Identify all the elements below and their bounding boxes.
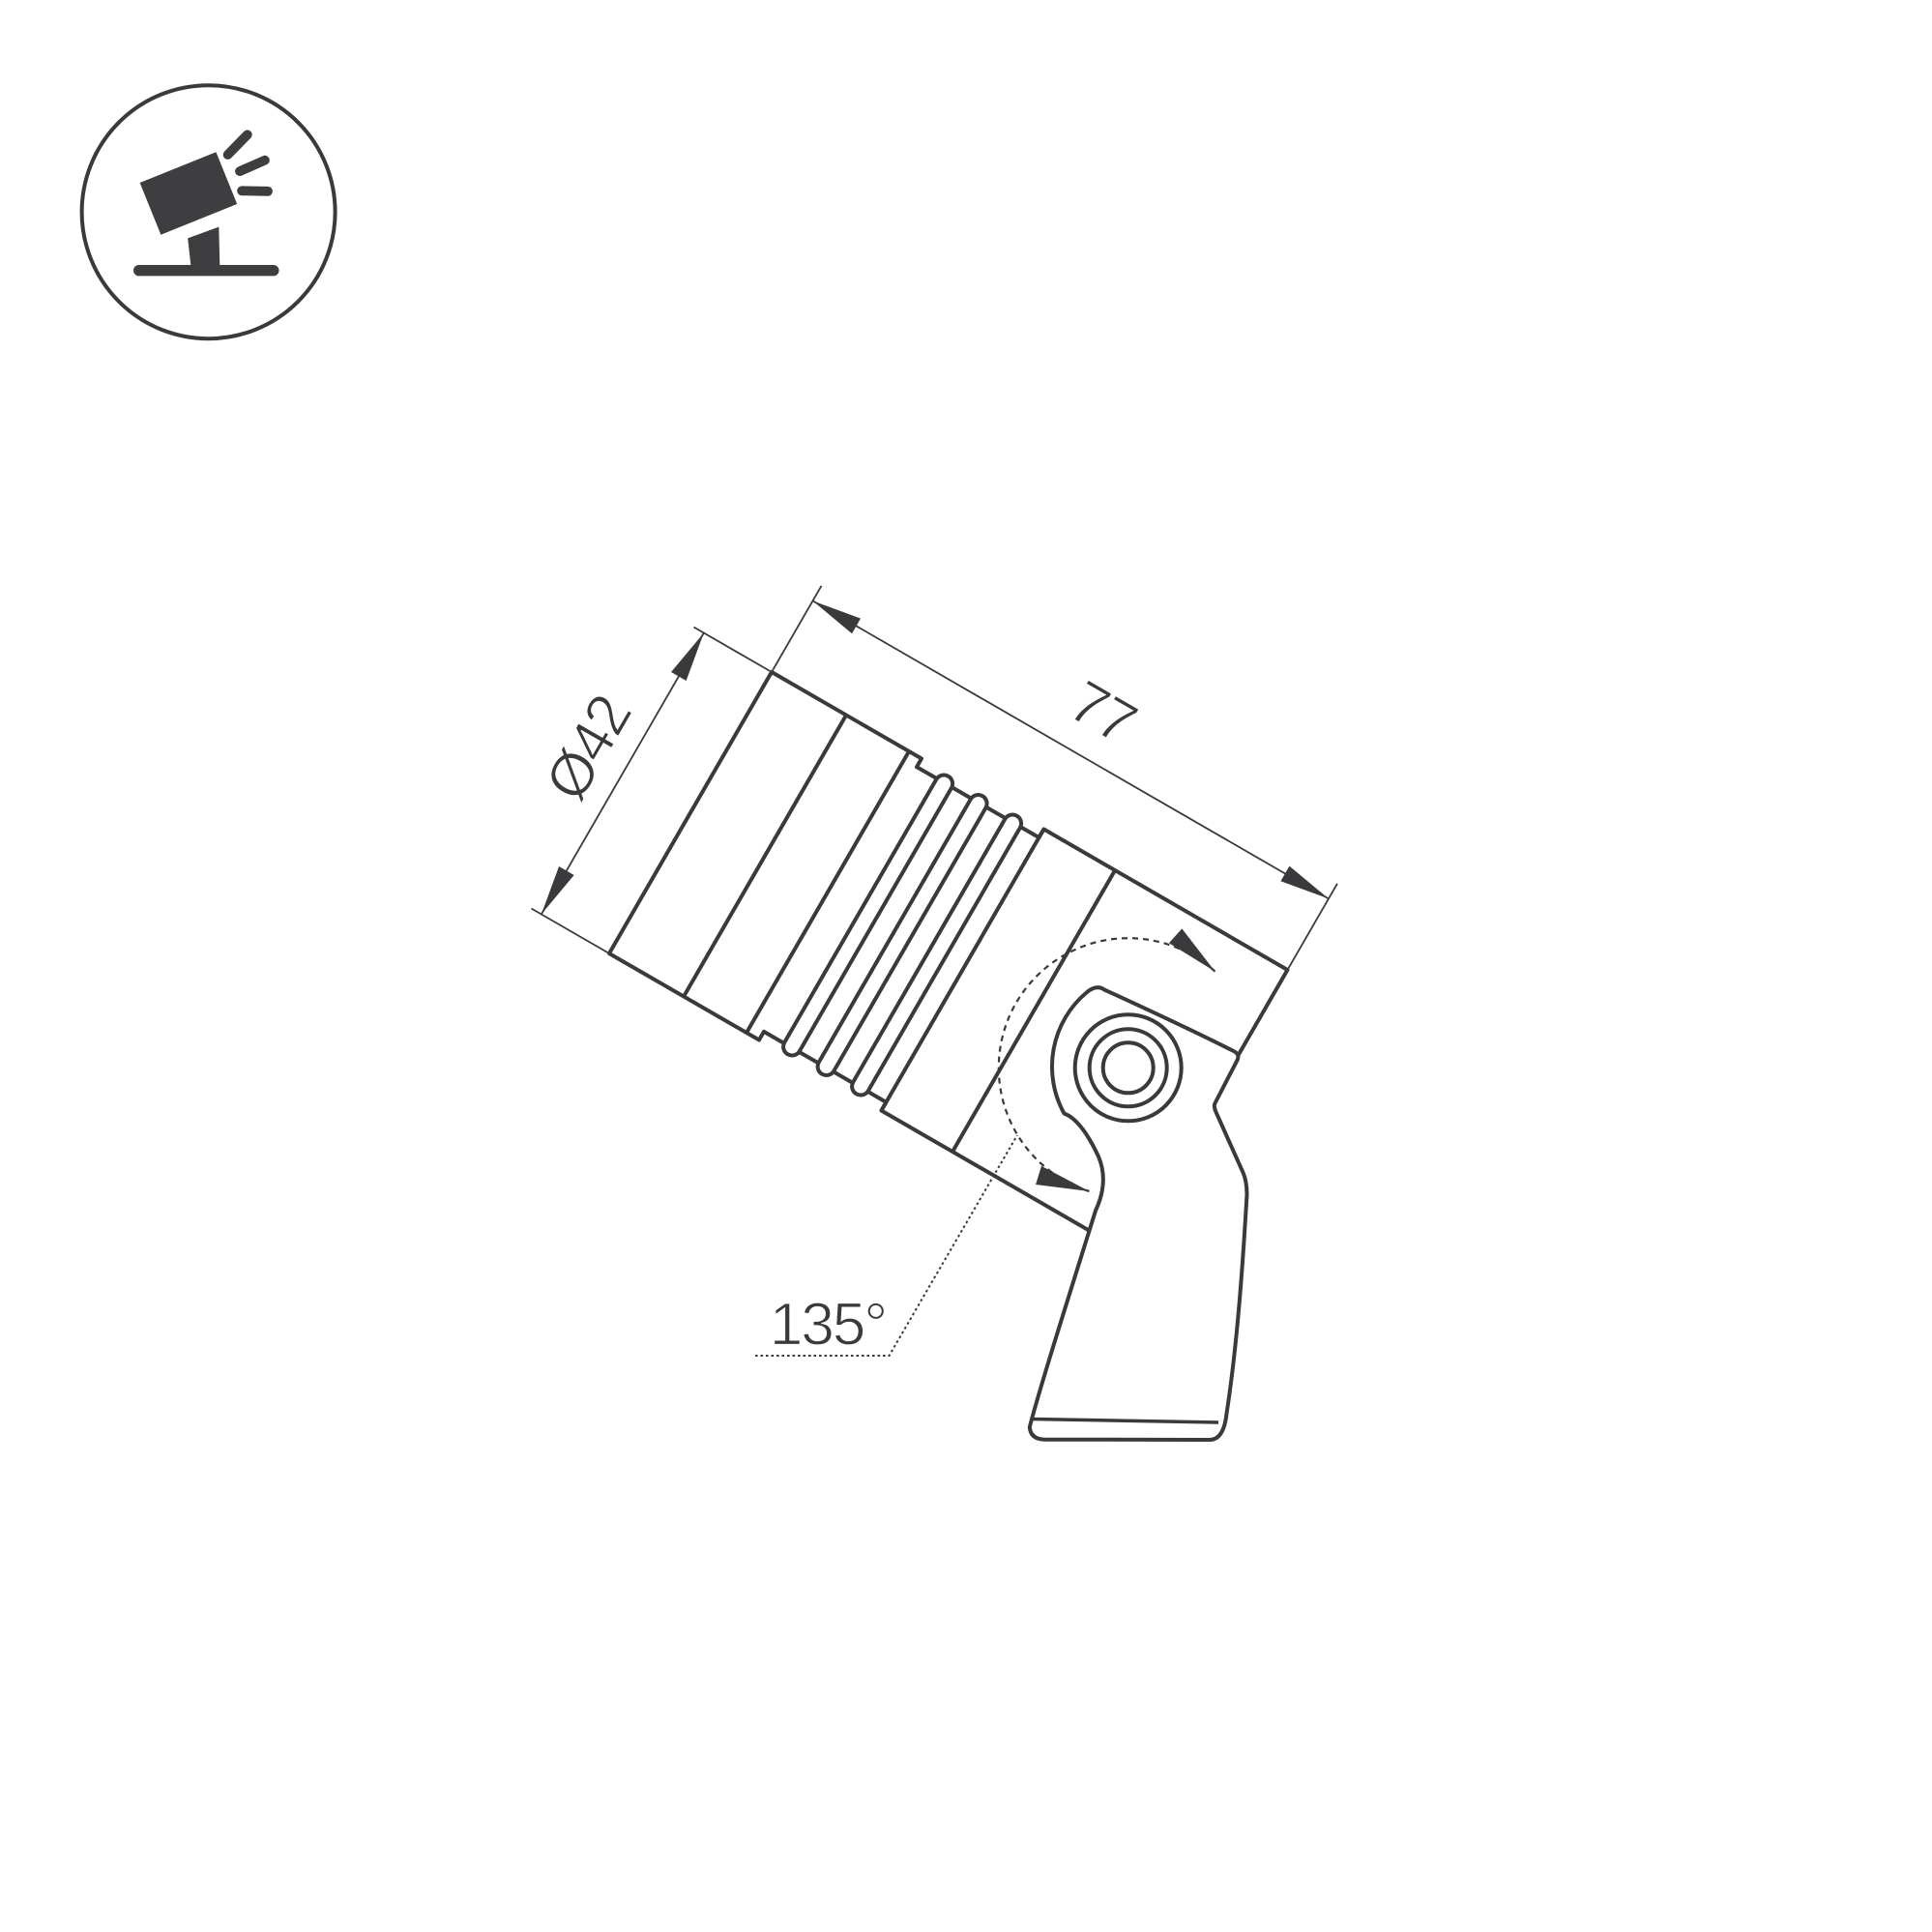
- svg-text:135°: 135°: [770, 1292, 886, 1359]
